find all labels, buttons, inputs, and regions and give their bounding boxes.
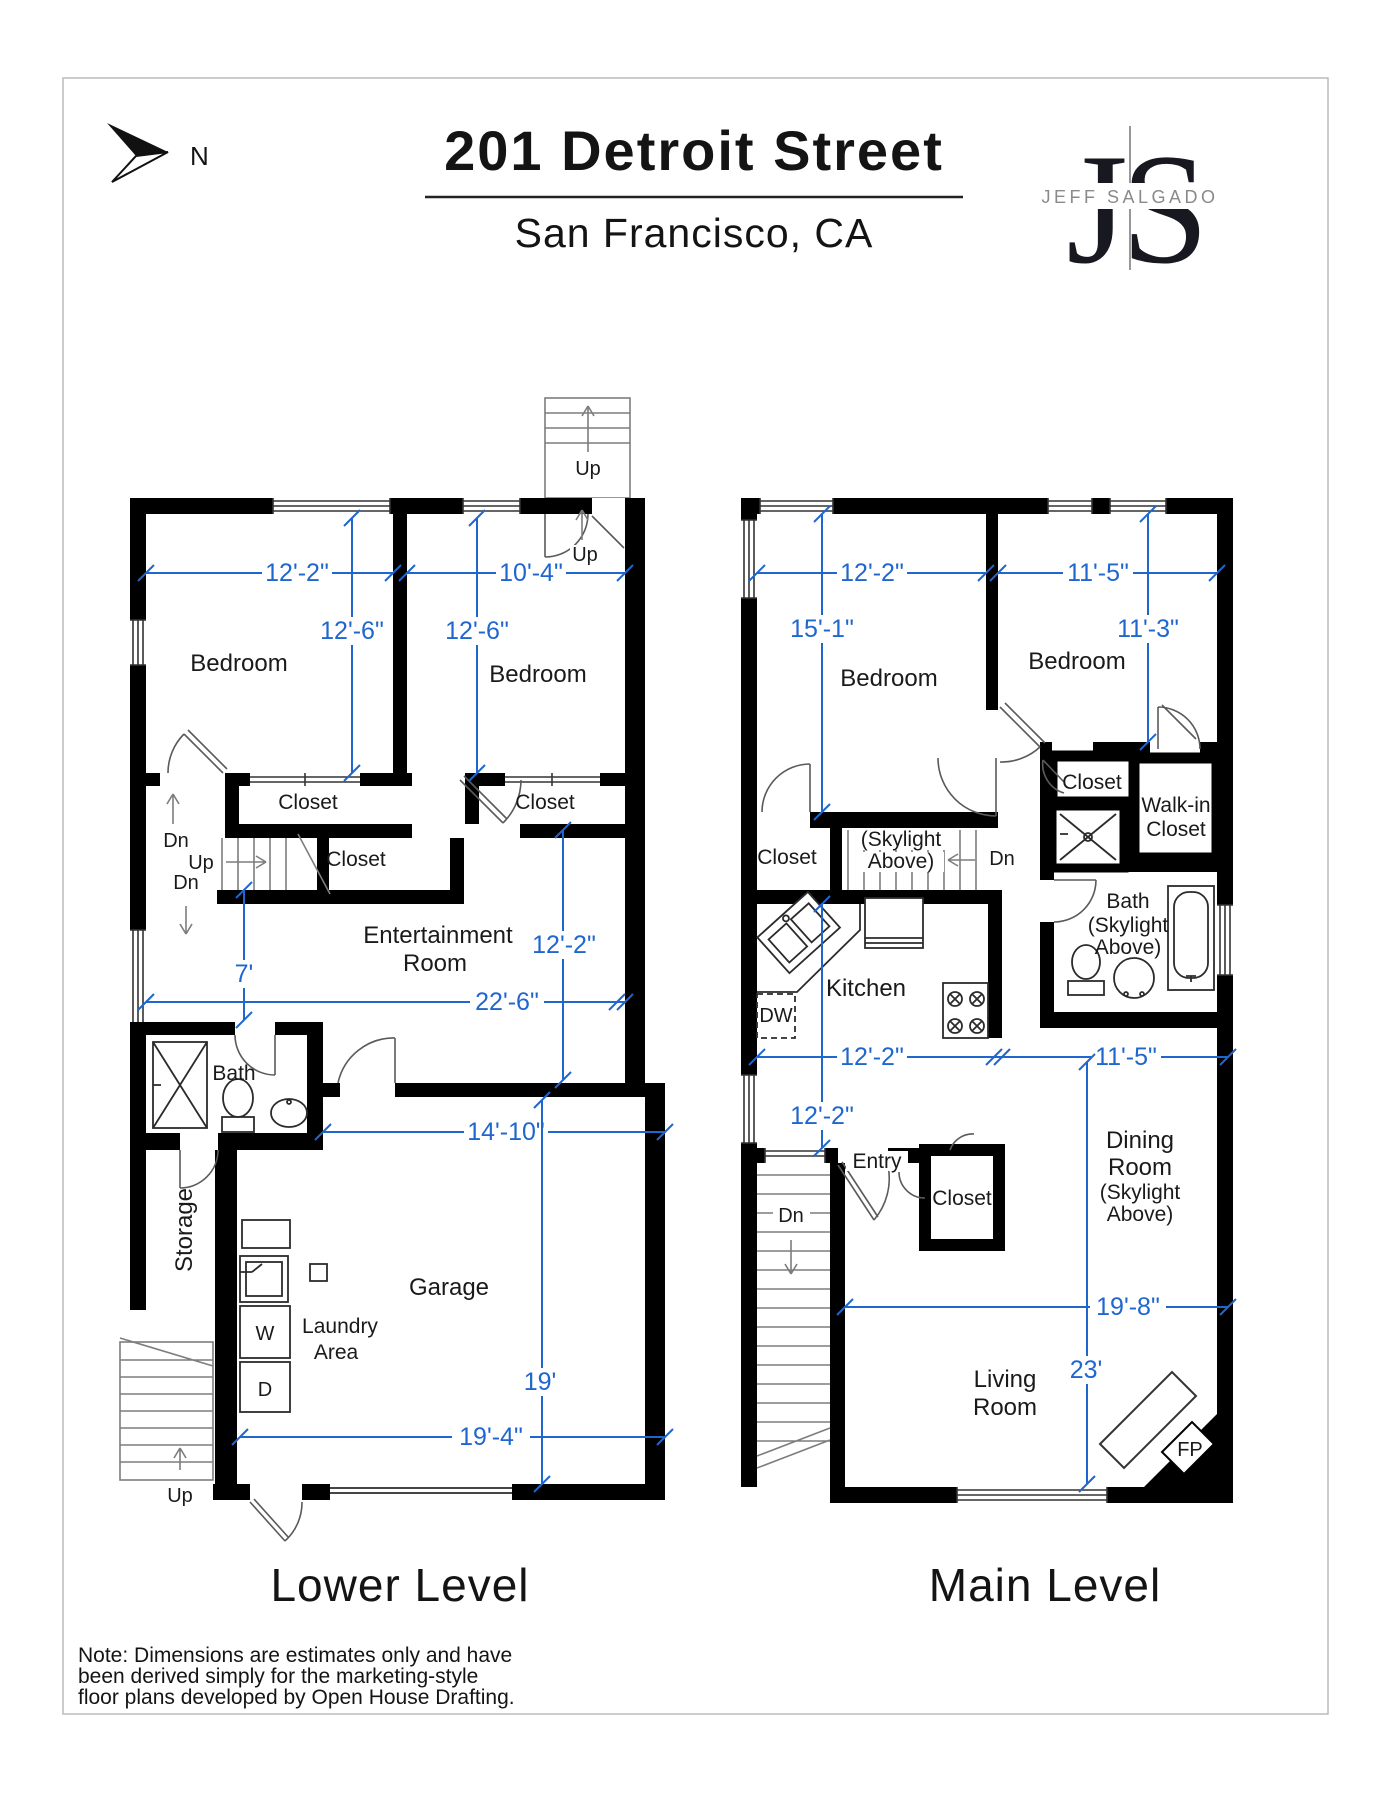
main-stairs-note-2: Above) bbox=[868, 850, 935, 873]
brand-logo: J S JEFF SALGADO bbox=[1036, 122, 1226, 297]
lower-hall-stairs: Dn Up Dn bbox=[163, 794, 330, 934]
main-kitchen-fixtures: DW bbox=[757, 892, 988, 1038]
main-level-title: Main Level bbox=[929, 1559, 1161, 1611]
lower-hall-up-label: Up bbox=[188, 852, 214, 874]
lower-garage-label: Garage bbox=[409, 1274, 489, 1301]
dim-main-living-w: 19'-8" bbox=[1096, 1293, 1160, 1321]
floor-drain bbox=[310, 1264, 327, 1281]
lower-top-up-label: Up bbox=[575, 458, 601, 480]
main-bedroom-left-label: Bedroom bbox=[840, 665, 937, 692]
lower-level-title: Lower Level bbox=[270, 1559, 529, 1611]
lower-top-exterior-stairs: Up bbox=[545, 398, 630, 498]
lower-bath-fixtures bbox=[153, 1042, 307, 1132]
dryer-label: D bbox=[258, 1379, 272, 1401]
laundry-sink-icon bbox=[240, 1256, 288, 1302]
main-dining-note-2: Above) bbox=[1107, 1203, 1174, 1226]
lower-entertainment-label-1: Entertainment bbox=[363, 922, 513, 949]
main-dining-note-1: (Skylight bbox=[1100, 1181, 1181, 1204]
lower-closet-left-label: Closet bbox=[278, 791, 338, 814]
main-closet-entry-label: Closet bbox=[932, 1187, 992, 1210]
dim-lower-bed-right-w: 10'-4" bbox=[499, 559, 563, 587]
laundry-counter bbox=[242, 1220, 290, 1248]
lower-bedroom-right-label: Bedroom bbox=[489, 661, 586, 688]
dim-lower-garage-w: 19'-4" bbox=[459, 1423, 523, 1451]
dim-lower-bed-left-w: 12'-2" bbox=[265, 559, 329, 587]
dim-lower-garage-upper-w: 14'-10" bbox=[467, 1118, 545, 1146]
lower-inner-up-label: Up bbox=[572, 544, 598, 566]
dim-main-bed-left-w: 12'-2" bbox=[840, 559, 904, 587]
logo-name: JEFF SALGADO bbox=[1041, 187, 1218, 207]
dishwasher-icon: DW bbox=[757, 994, 795, 1038]
dim-main-bed-left-h: 15'-1" bbox=[790, 615, 854, 643]
logo-letter-j: J bbox=[1066, 122, 1128, 297]
main-dining-label-2: Room bbox=[1108, 1154, 1172, 1181]
lower-hall-dn2-label: Dn bbox=[173, 872, 199, 894]
main-living-label-2: Room bbox=[973, 1394, 1037, 1421]
dim-main-dining-w: 11'-5" bbox=[1095, 1043, 1157, 1071]
dim-lower-ent-h: 12'-2" bbox=[532, 931, 596, 959]
main-closet-hall-label: Closet bbox=[757, 846, 817, 869]
main-bedroom-right-label: Bedroom bbox=[1028, 648, 1125, 675]
dim-main-bed-right-h: 11'-3" bbox=[1117, 615, 1179, 643]
lower-bedroom-left-label: Bedroom bbox=[190, 650, 287, 677]
dim-lower-bed-right-h: 12'-6" bbox=[445, 617, 509, 645]
lower-entertainment-label-2: Room bbox=[403, 950, 467, 977]
main-walkin-label-1: Walk-in bbox=[1141, 794, 1210, 817]
dim-main-living-h: 23' bbox=[1070, 1356, 1103, 1384]
toilet-icon bbox=[222, 1079, 254, 1132]
dim-lower-garage-h: 19' bbox=[524, 1368, 557, 1396]
note-line-3: floor plans developed by Open House Draf… bbox=[78, 1686, 515, 1709]
page-subtitle: San Francisco, CA bbox=[515, 210, 874, 256]
note-line-2: been derived simply for the marketing-st… bbox=[78, 1665, 478, 1688]
main-bath-label: Bath bbox=[1106, 890, 1149, 913]
lower-bath-label: Bath bbox=[212, 1062, 255, 1085]
dim-lower-bed-left-h: 12'-6" bbox=[320, 617, 384, 645]
lower-level-plan: Up bbox=[120, 398, 673, 1611]
main-bath-note-1: (Skylight bbox=[1088, 914, 1169, 937]
stove-icon bbox=[943, 983, 988, 1038]
main-entry-dn-label: Dn bbox=[778, 1205, 804, 1227]
washer-label: W bbox=[256, 1323, 275, 1345]
main-living-label-1: Living bbox=[974, 1366, 1037, 1393]
main-entry-label: Entry bbox=[852, 1150, 902, 1173]
fireplace-label: FP bbox=[1177, 1439, 1203, 1461]
note-line-1: Note: Dimensions are estimates only and … bbox=[78, 1644, 512, 1667]
dim-main-bed-right-w: 11'-5" bbox=[1067, 559, 1129, 587]
main-dining-label-1: Dining bbox=[1106, 1127, 1174, 1154]
dim-lower-hall-w: 7' bbox=[235, 960, 254, 988]
main-closet-small-label: Closet bbox=[1062, 771, 1122, 794]
logo-letter-s: S bbox=[1121, 122, 1209, 297]
lower-laundry-label-2: Area bbox=[314, 1341, 359, 1364]
floor-plan-page: N 201 Detroit Street San Francisco, CA J… bbox=[0, 0, 1391, 1800]
north-compass-icon: N bbox=[107, 123, 209, 182]
lower-closet-hall-label: Closet bbox=[326, 848, 386, 871]
bathtub-icon bbox=[1168, 886, 1214, 990]
main-entry-stairs: Dn bbox=[757, 1175, 830, 1468]
dim-main-kitchen-w: 12'-2" bbox=[840, 1043, 904, 1071]
main-walkin-label-2: Closet bbox=[1146, 818, 1206, 841]
sink-icon bbox=[1114, 958, 1154, 998]
lower-closet-right-label: Closet bbox=[515, 791, 575, 814]
lower-laundry-label-1: Laundry bbox=[302, 1315, 378, 1338]
dishwasher-label: DW bbox=[759, 1005, 792, 1027]
page-title: 201 Detroit Street bbox=[444, 119, 944, 182]
main-upper-dn-label: Dn bbox=[989, 848, 1015, 870]
main-stairs-note-1: (Skylight bbox=[861, 828, 942, 851]
dim-main-kitchen-h: 12'-2" bbox=[790, 1102, 854, 1130]
refrigerator-icon bbox=[865, 898, 923, 948]
fireplace-icon: FP bbox=[1100, 1372, 1233, 1487]
header: N 201 Detroit Street San Francisco, CA J… bbox=[107, 119, 1226, 297]
dim-lower-ent-w: 22'-6" bbox=[475, 988, 539, 1016]
lower-bottom-up-label: Up bbox=[167, 1485, 193, 1507]
lower-storage-label: Storage bbox=[171, 1188, 198, 1272]
sink-icon bbox=[271, 1099, 307, 1127]
main-level-plan: (Skylight Above) Dn Dn bbox=[741, 498, 1236, 1611]
footer-note: Note: Dimensions are estimates only and … bbox=[78, 1644, 515, 1709]
lower-bottom-exterior-stairs: Up bbox=[120, 1338, 213, 1507]
shower-icon bbox=[153, 1042, 207, 1128]
main-bath-note-2: Above) bbox=[1095, 936, 1162, 959]
lower-walls bbox=[130, 498, 665, 1500]
main-shower-icon bbox=[1060, 814, 1116, 860]
main-kitchen-label: Kitchen bbox=[826, 975, 906, 1002]
lower-hall-dn1-label: Dn bbox=[163, 830, 189, 852]
main-upper-stairs: (Skylight Above) Dn bbox=[848, 828, 1019, 890]
compass-label: N bbox=[190, 141, 209, 171]
